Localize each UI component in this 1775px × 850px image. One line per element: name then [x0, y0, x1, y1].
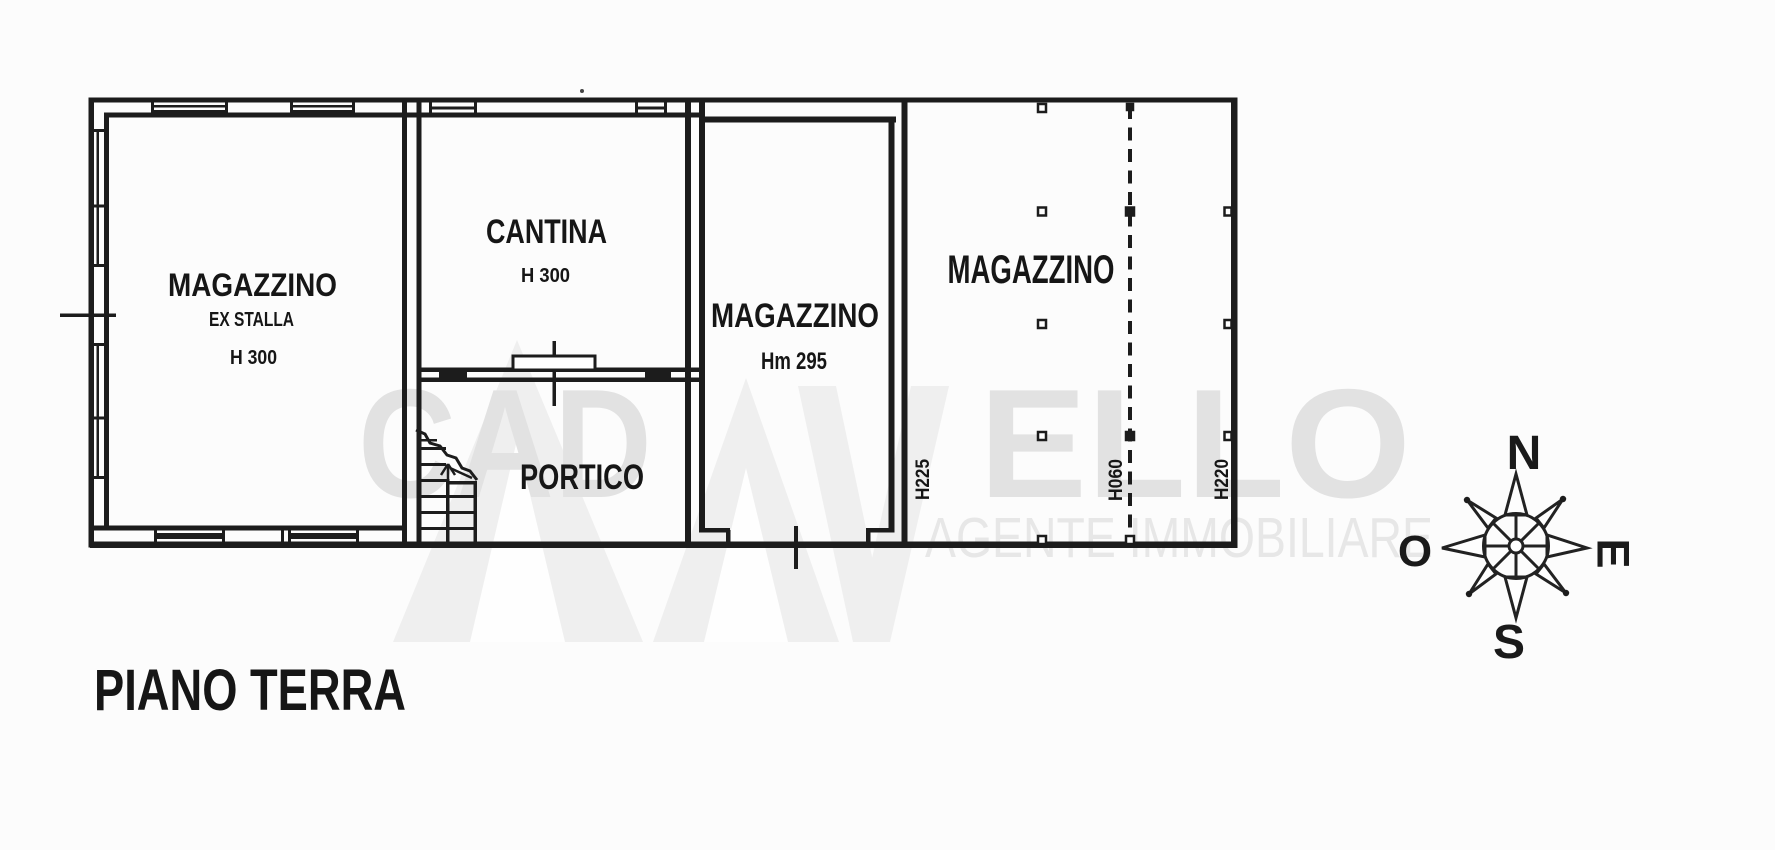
svg-text:PORTICO: PORTICO: [520, 458, 644, 497]
svg-text:S: S: [1493, 616, 1525, 669]
svg-text:O: O: [1398, 527, 1432, 576]
svg-text:H 300: H 300: [230, 347, 277, 369]
svg-text:MAGAZZINO: MAGAZZINO: [711, 297, 879, 335]
svg-text:MAGAZZINO: MAGAZZINO: [168, 267, 337, 303]
svg-text:H225: H225: [913, 459, 934, 500]
svg-text:H 300: H 300: [521, 265, 570, 287]
svg-text:PIANO TERRA: PIANO TERRA: [94, 658, 406, 723]
svg-text:H220: H220: [1212, 459, 1233, 500]
svg-text:Hm 295: Hm 295: [761, 348, 827, 375]
svg-text:MAGAZZINO: MAGAZZINO: [948, 248, 1115, 292]
svg-text:AGENTE IMMOBILIARE: AGENTE IMMOBILIARE: [925, 506, 1433, 570]
svg-text:ELLO: ELLO: [979, 357, 1411, 530]
svg-text:H060: H060: [1106, 459, 1127, 501]
svg-text:CANTINA: CANTINA: [486, 213, 607, 251]
svg-text:E: E: [1588, 538, 1639, 568]
svg-text:EX STALLA: EX STALLA: [209, 309, 294, 331]
svg-text:N: N: [1507, 427, 1542, 480]
